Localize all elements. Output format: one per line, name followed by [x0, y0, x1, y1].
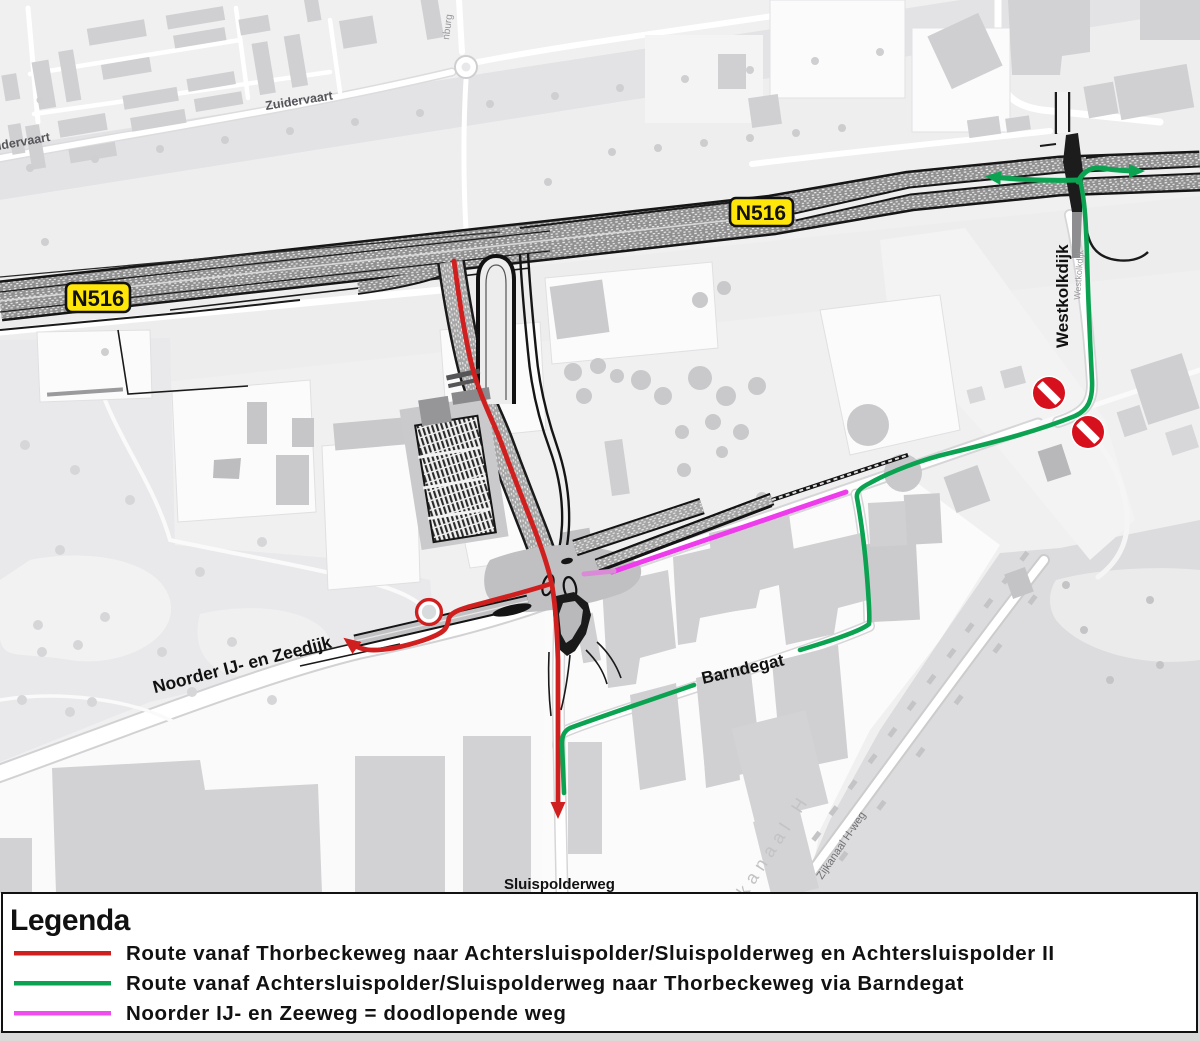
svg-text:Route vanaf Thorbeckeweg naar: Route vanaf Thorbeckeweg naar Achterslui… [126, 942, 1055, 965]
svg-text:Westkolkdijk: Westkolkdijk [1053, 244, 1072, 348]
svg-text:Legenda: Legenda [10, 904, 131, 937]
svg-text:Route vanaf Achtersluispolder/: Route vanaf Achtersluispolder/Sluispolde… [126, 972, 964, 995]
svg-text:Sluispolderweg: Sluispolderweg [504, 876, 615, 893]
svg-text:Noorder IJ- en Zeeweg = doodlo: Noorder IJ- en Zeeweg = doodlopende weg [126, 1002, 566, 1025]
svg-text:N516: N516 [72, 286, 125, 311]
svg-text:N516: N516 [736, 202, 786, 225]
